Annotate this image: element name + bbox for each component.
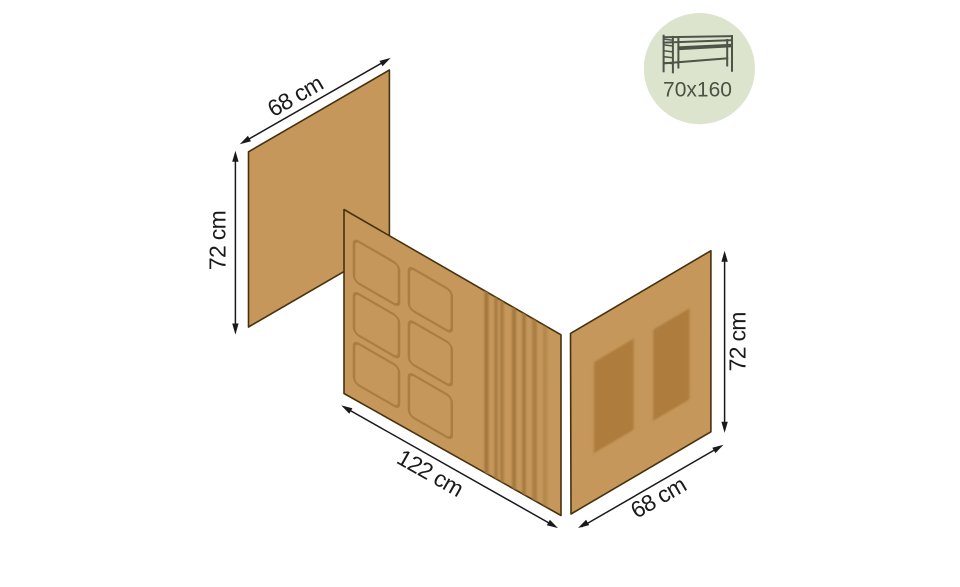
svg-text:68 cm: 68 cm [626,471,690,523]
svg-text:72 cm: 72 cm [725,312,751,371]
svg-text:72 cm: 72 cm [205,211,231,270]
svg-text:70x160: 70x160 [663,78,732,101]
